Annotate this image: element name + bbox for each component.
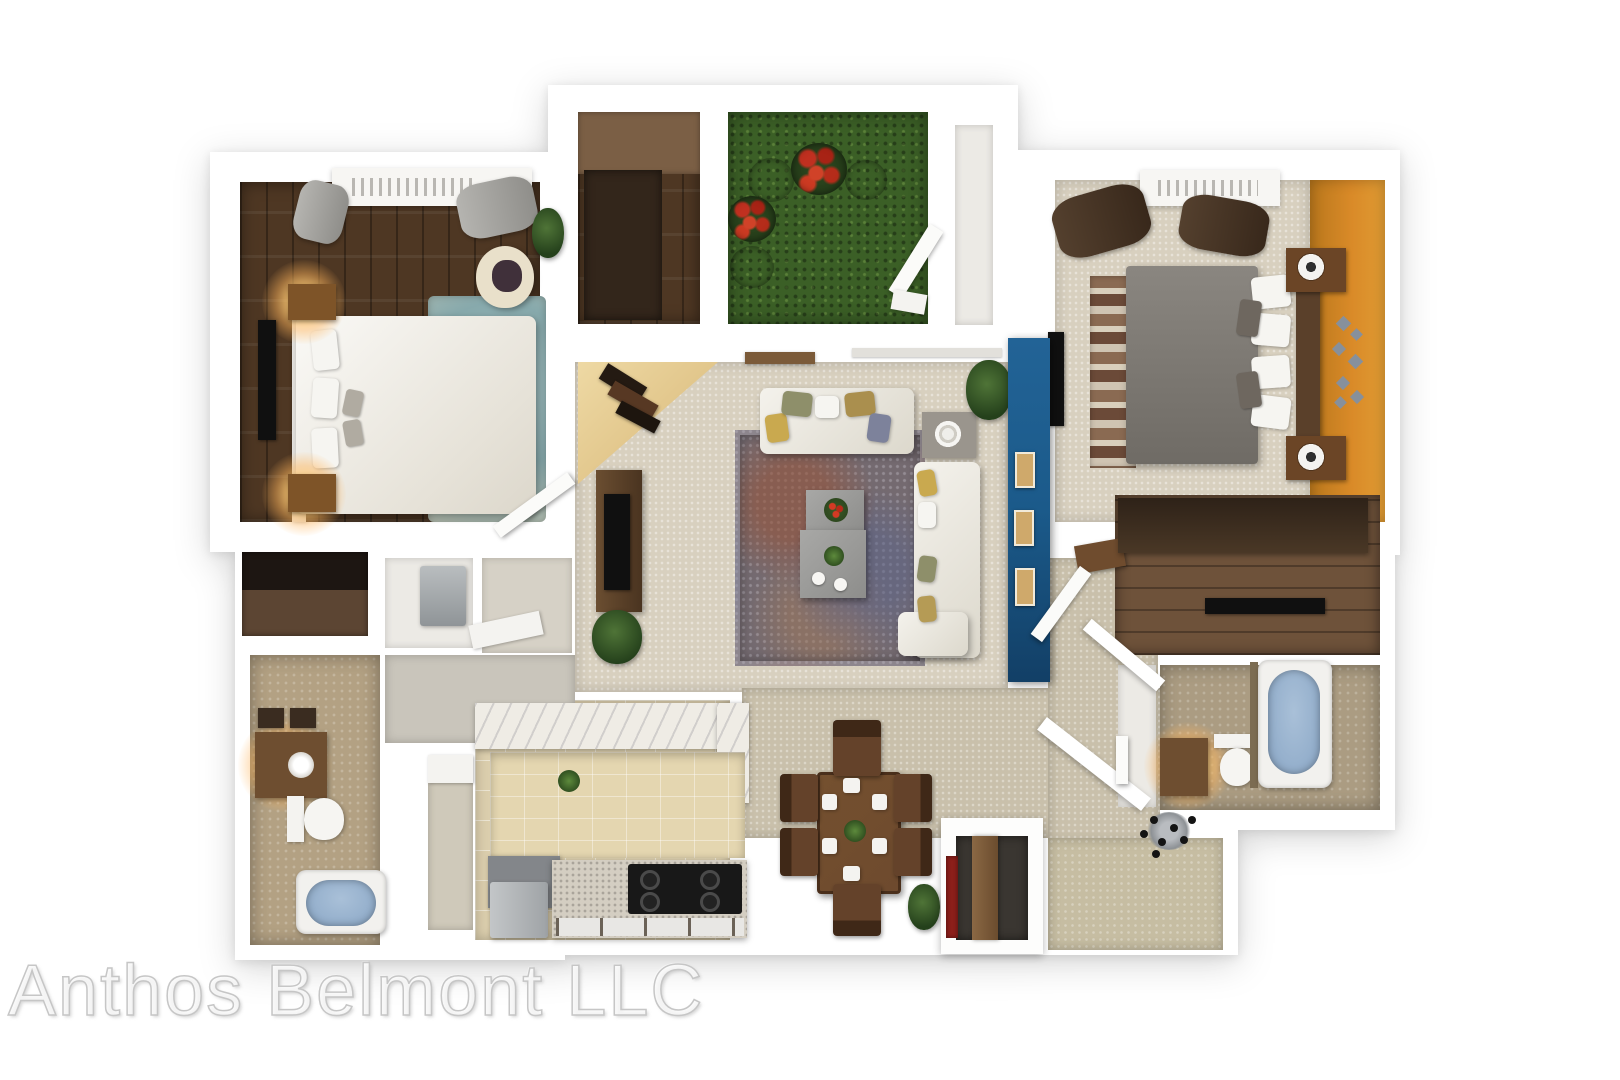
- watermark: Anthos Belmont LLC: [8, 950, 704, 1032]
- decor-bowl: [834, 578, 847, 591]
- flower-bush-blue: [730, 246, 774, 288]
- wall-frame: [1014, 510, 1034, 546]
- sectional-pillow: [917, 595, 938, 623]
- closet-wardrobe-top: [578, 112, 700, 174]
- red-flower-centerpiece: [824, 498, 848, 522]
- coat-rack-hooks: [1150, 816, 1158, 824]
- plate: [872, 794, 887, 810]
- bedroom2-ac-vent: [1158, 180, 1258, 196]
- plate: [822, 794, 837, 810]
- decor-bowl: [812, 572, 825, 585]
- sectional-pillow: [916, 555, 937, 583]
- stove-burner: [700, 892, 720, 912]
- living-plant: [966, 360, 1012, 420]
- side-table-lamp: [934, 420, 962, 448]
- dining-chair-right: [894, 774, 932, 822]
- floor-plan: [0, 0, 1620, 1080]
- kitchen-plant: [558, 770, 580, 792]
- bath2-divider: [1250, 662, 1258, 788]
- washer: [420, 566, 466, 626]
- master-nightstand-top: [288, 284, 336, 320]
- entry-floor: [1048, 838, 1223, 950]
- coffee-table-plant: [824, 546, 844, 566]
- cabinet-front: [556, 918, 744, 936]
- kitchen-backsplash: [490, 752, 745, 858]
- bedroom2-bed: [1126, 266, 1258, 464]
- mirror-frame: [290, 708, 316, 728]
- sofa-pillow: [866, 413, 892, 444]
- red-cabinet: [946, 856, 958, 938]
- master-ac-vent: [352, 178, 472, 196]
- dining-chair-right: [894, 828, 932, 876]
- dining-plant: [908, 884, 940, 930]
- wall-frame: [1015, 452, 1035, 488]
- bath2-door: [1116, 736, 1128, 784]
- dining-chair-top: [833, 720, 881, 776]
- dining-centerpiece: [844, 820, 866, 842]
- sink: [288, 752, 314, 778]
- stove-burner: [640, 892, 660, 912]
- master-pillow: [311, 377, 340, 419]
- console-plant: [592, 610, 642, 664]
- window-sill: [852, 348, 1002, 357]
- floor-plan-render: Anthos Belmont LLC: [0, 0, 1620, 1080]
- dining-chair-bottom: [833, 884, 881, 936]
- entry-closet-door: [972, 836, 998, 940]
- dining-chair-left: [780, 828, 818, 876]
- stove-burner: [640, 870, 660, 890]
- plate: [843, 778, 860, 793]
- closet-wardrobe-interior: [584, 170, 662, 320]
- bedroom2-lamp: [1296, 442, 1326, 472]
- patio-threshold: [745, 352, 815, 364]
- breakfast-bar: [475, 703, 747, 749]
- bedroom2-lamp: [1296, 252, 1326, 282]
- flower-bush-red: [791, 143, 847, 195]
- sofa-pillow: [781, 390, 813, 417]
- fridge: [490, 882, 548, 938]
- master-nightstand-bottom: [288, 474, 336, 512]
- pantry-shelf: [428, 755, 473, 783]
- sofa-pillow: [815, 396, 839, 418]
- toilet2-tank: [1214, 734, 1254, 748]
- wall-frame: [1015, 568, 1035, 606]
- wardrobe-dresser: [242, 552, 368, 636]
- flower-bush-blue: [845, 160, 887, 200]
- stove-burner: [700, 870, 720, 890]
- toilet2: [1220, 748, 1254, 786]
- master-tv: [258, 320, 276, 440]
- sectional-pillow: [918, 502, 936, 528]
- closet2-wardrobe: [1118, 498, 1368, 553]
- plate: [872, 838, 887, 854]
- storage-room-floor: [955, 125, 993, 325]
- bedroom2-tv: [1048, 332, 1064, 426]
- bath2-vanity: [1160, 738, 1208, 796]
- dining-chair-left: [780, 774, 818, 822]
- sofa-pillow: [764, 413, 790, 444]
- plate: [822, 838, 837, 854]
- plate: [843, 866, 860, 881]
- living-tv: [604, 494, 630, 590]
- bathtub: [306, 880, 376, 926]
- toilet: [304, 798, 344, 840]
- master-plant: [532, 208, 564, 258]
- mirror-frame: [258, 708, 284, 728]
- master-armchair-seat: [492, 260, 522, 292]
- flower-bush-red: [728, 196, 776, 242]
- closet2-dresser-top: [1205, 598, 1325, 614]
- bathtub2: [1268, 670, 1320, 774]
- toilet-tank: [287, 796, 304, 842]
